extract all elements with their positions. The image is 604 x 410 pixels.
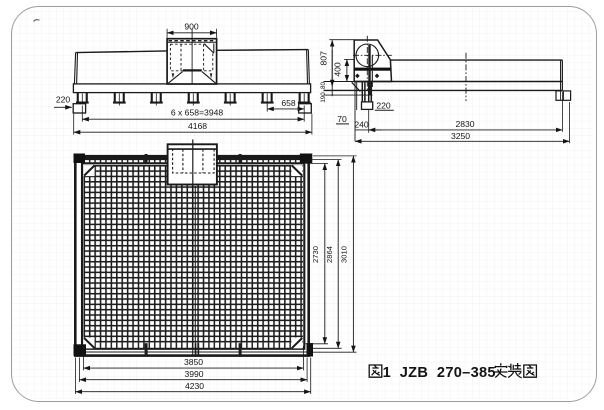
svg-text:900: 900 — [184, 21, 199, 31]
svg-text:4168: 4168 — [188, 121, 207, 131]
svg-text:220: 220 — [376, 100, 391, 110]
svg-text:190: 190 — [320, 92, 327, 103]
svg-text:3990: 3990 — [184, 369, 203, 379]
svg-text:4230: 4230 — [185, 381, 204, 391]
svg-text:80: 80 — [320, 82, 327, 89]
svg-text:807: 807 — [318, 51, 328, 66]
svg-text:658: 658 — [281, 98, 296, 108]
svg-text:3010: 3010 — [340, 246, 349, 263]
svg-text:240: 240 — [354, 120, 369, 130]
svg-text:1 JZB 270–385: 1 JZB 270–385 — [383, 365, 496, 381]
svg-text:3250: 3250 — [451, 131, 470, 141]
svg-text:6 x 658=3948: 6 x 658=3948 — [171, 108, 224, 118]
svg-text:3850: 3850 — [184, 357, 203, 367]
svg-text:2864: 2864 — [325, 246, 334, 263]
svg-text:220: 220 — [56, 95, 71, 105]
svg-text:2730: 2730 — [311, 246, 320, 263]
svg-text:400: 400 — [333, 62, 343, 77]
svg-text:2830: 2830 — [455, 119, 474, 129]
svg-text:70: 70 — [337, 114, 347, 124]
